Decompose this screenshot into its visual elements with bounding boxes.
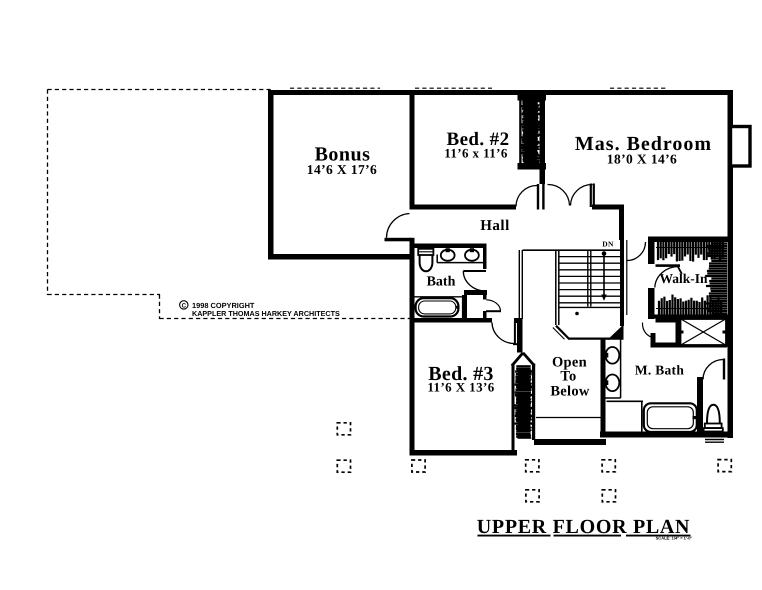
svg-text:14’6 X 17’6: 14’6 X 17’6 xyxy=(307,162,377,177)
svg-text:Bath: Bath xyxy=(427,275,456,290)
svg-text:SCALE: 1/4″ = 1′-0″: SCALE: 1/4″ = 1′-0″ xyxy=(656,536,693,541)
svg-text:C: C xyxy=(182,303,187,310)
svg-text:Walk-In: Walk-In xyxy=(659,271,708,286)
svg-text:M. Bath: M. Bath xyxy=(635,363,685,378)
svg-text:To: To xyxy=(560,369,576,385)
svg-text:Hall: Hall xyxy=(480,218,510,234)
svg-text:DN: DN xyxy=(602,239,614,248)
svg-text:11’6 x 11’6: 11’6 x 11’6 xyxy=(444,146,508,161)
svg-text:18’0 X 14’6: 18’0 X 14’6 xyxy=(607,152,677,167)
svg-text:Below: Below xyxy=(550,383,590,399)
svg-text:KAPPLER THOMAS HARKEY ARCHITEC: KAPPLER THOMAS HARKEY ARCHITECTS xyxy=(192,309,340,318)
svg-text:11’6 X 13’6: 11’6 X 13’6 xyxy=(427,379,494,394)
